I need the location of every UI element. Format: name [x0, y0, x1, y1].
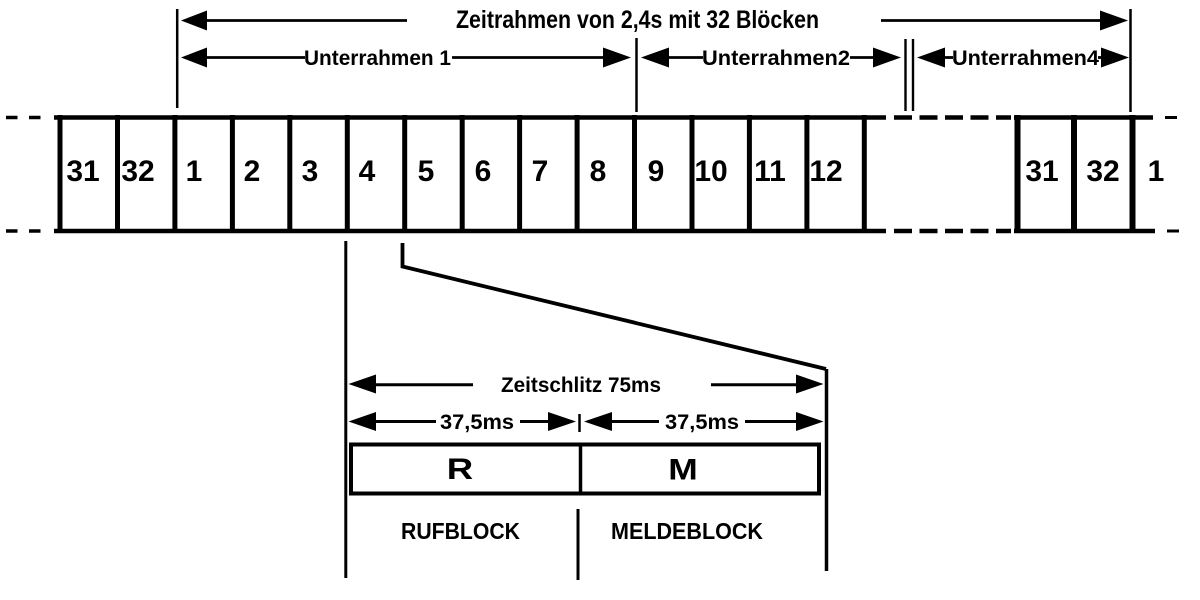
- svg-text:12: 12: [809, 155, 842, 188]
- svg-text:8: 8: [590, 155, 607, 188]
- svg-text:7: 7: [532, 155, 549, 188]
- svg-text:31: 31: [66, 155, 99, 188]
- svg-text:Unterrahmen 1: Unterrahmen 1: [304, 47, 451, 70]
- svg-text:31: 31: [1025, 155, 1058, 188]
- svg-text:Unterrahmen2: Unterrahmen2: [702, 47, 850, 70]
- svg-text:Unterrahmen4: Unterrahmen4: [952, 47, 1099, 70]
- svg-text:32: 32: [121, 155, 154, 188]
- svg-text:Zeitrahmen von 2,4s mit 32 Blö: Zeitrahmen von 2,4s mit 32 Blöcken: [456, 6, 819, 34]
- svg-text:10: 10: [694, 155, 727, 188]
- svg-text:37,5ms: 37,5ms: [440, 411, 514, 434]
- svg-text:9: 9: [648, 155, 665, 188]
- svg-text:M: M: [668, 452, 697, 486]
- svg-text:6: 6: [475, 155, 492, 188]
- svg-text:2: 2: [244, 155, 261, 188]
- svg-text:5: 5: [418, 155, 435, 188]
- svg-text:37,5ms: 37,5ms: [665, 411, 739, 434]
- svg-text:RUFBLOCK: RUFBLOCK: [401, 518, 520, 544]
- svg-text:3: 3: [302, 155, 319, 188]
- svg-text:11: 11: [754, 155, 786, 188]
- svg-text:MELDEBLOCK: MELDEBLOCK: [611, 518, 763, 544]
- svg-text:1: 1: [186, 155, 203, 188]
- svg-text:Zeitschlitz 75ms: Zeitschlitz 75ms: [501, 374, 661, 397]
- svg-text:32: 32: [1086, 155, 1119, 188]
- svg-text:1: 1: [1148, 155, 1165, 188]
- svg-text:R: R: [447, 453, 473, 486]
- svg-text:4: 4: [359, 155, 376, 188]
